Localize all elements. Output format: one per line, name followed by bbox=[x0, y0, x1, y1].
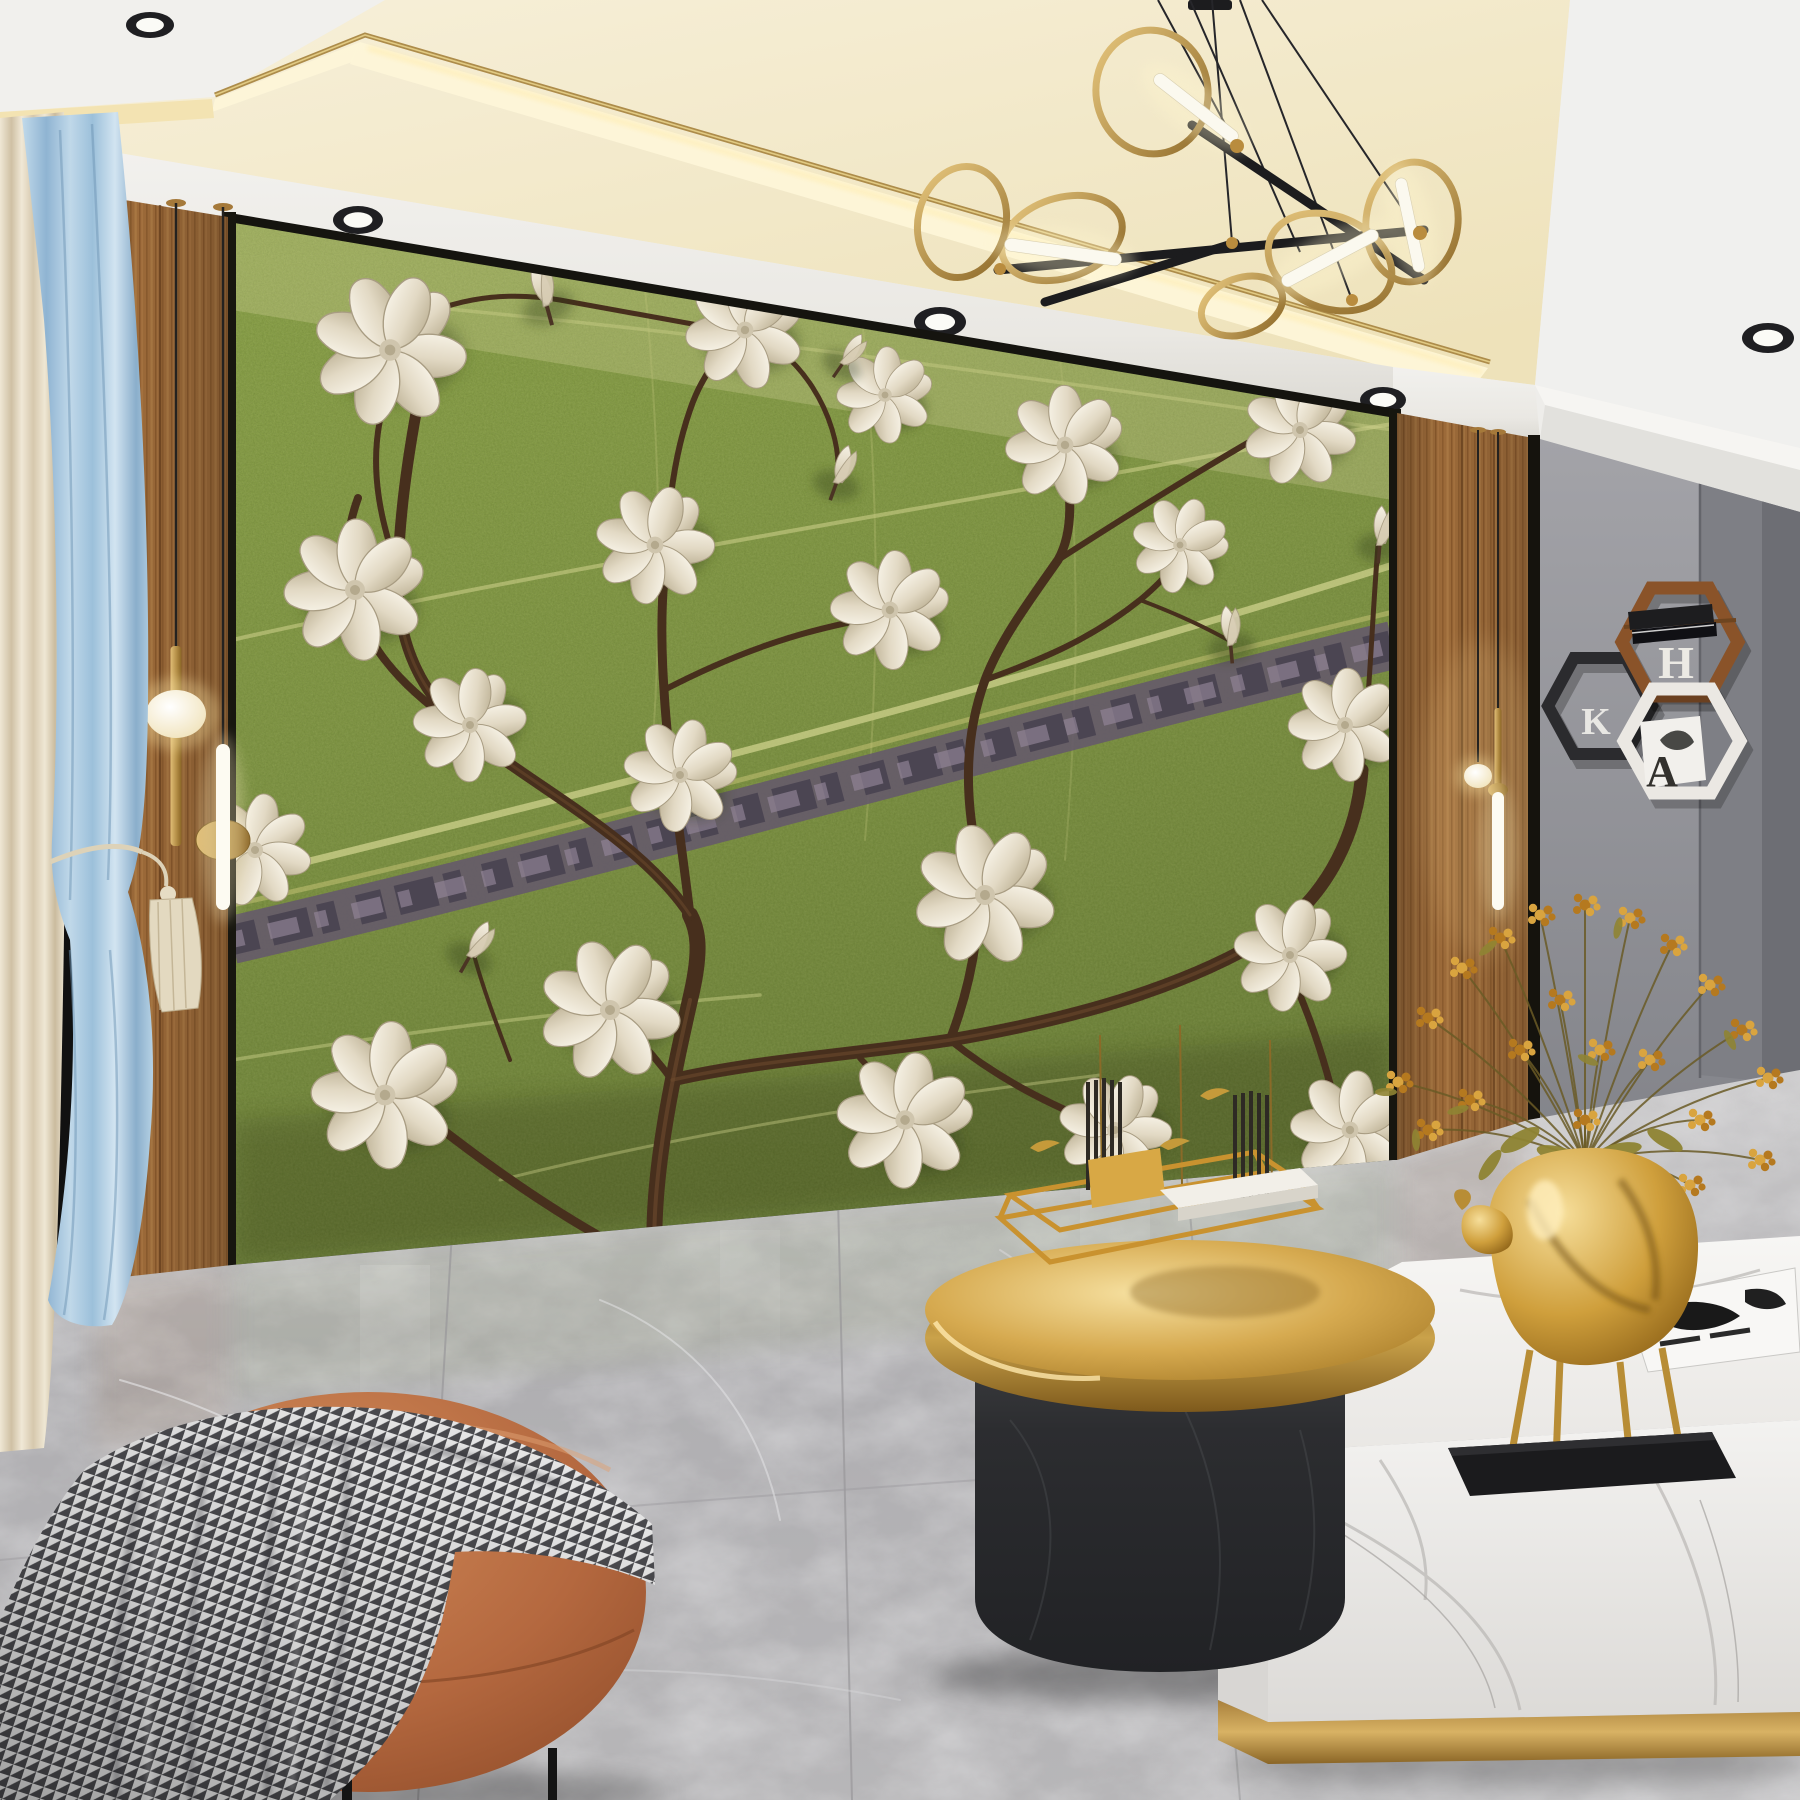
berry bbox=[1586, 1123, 1594, 1131]
spotlight-lens bbox=[1753, 330, 1783, 347]
gold-top-reflection bbox=[1130, 1266, 1320, 1318]
shelf-letter-a: A bbox=[1646, 747, 1678, 796]
berry bbox=[1711, 988, 1719, 996]
pendant-brass-rod bbox=[1495, 708, 1502, 792]
chandelier-joint bbox=[1226, 237, 1238, 249]
berry bbox=[1429, 1021, 1437, 1029]
berry bbox=[1586, 908, 1594, 916]
tassel-skirt bbox=[150, 898, 202, 1012]
spotlight-lens bbox=[344, 212, 373, 227]
berry bbox=[1691, 1188, 1699, 1196]
berry bbox=[1529, 904, 1537, 912]
berry bbox=[1699, 974, 1707, 982]
berry bbox=[1676, 936, 1685, 945]
spotlight-lens bbox=[1370, 393, 1397, 407]
berry bbox=[1524, 1041, 1533, 1050]
floor-light-streak bbox=[720, 1230, 780, 1490]
berry bbox=[1704, 1111, 1713, 1120]
berry bbox=[1718, 983, 1725, 990]
berry bbox=[1731, 1019, 1739, 1027]
berry bbox=[1638, 916, 1645, 923]
berry bbox=[1450, 969, 1458, 977]
berry bbox=[1549, 989, 1557, 997]
berry bbox=[1466, 959, 1475, 968]
berry bbox=[1593, 903, 1600, 910]
berry bbox=[1694, 1176, 1703, 1185]
berry bbox=[1761, 1163, 1769, 1171]
berry bbox=[1417, 1007, 1425, 1015]
berry bbox=[1478, 1098, 1485, 1105]
berry bbox=[1399, 1085, 1407, 1093]
berry bbox=[1528, 1048, 1535, 1055]
arrangement-leaf bbox=[1375, 1088, 1397, 1096]
berry bbox=[1593, 1118, 1600, 1125]
berry bbox=[1708, 1118, 1715, 1125]
berry bbox=[1489, 927, 1497, 935]
hallway-gray-wall: H K A bbox=[1540, 439, 1800, 1120]
berry bbox=[1573, 906, 1581, 914]
deer-vase-body bbox=[1488, 1148, 1698, 1365]
berry bbox=[1689, 1109, 1697, 1117]
berry bbox=[1471, 1103, 1479, 1111]
berry bbox=[1661, 934, 1669, 942]
berry bbox=[1470, 966, 1477, 973]
berry bbox=[1679, 1174, 1687, 1182]
berry bbox=[1509, 1039, 1517, 1047]
chandelier-joint bbox=[994, 263, 1006, 275]
berry bbox=[1402, 1073, 1411, 1082]
berry bbox=[1673, 948, 1681, 956]
berry bbox=[1474, 1091, 1483, 1100]
berry bbox=[1651, 1063, 1659, 1071]
shelf-letter-h: H bbox=[1658, 637, 1694, 688]
berry bbox=[1631, 921, 1639, 929]
berry bbox=[1756, 1079, 1764, 1087]
berry bbox=[1451, 957, 1459, 965]
pendant-globe-light bbox=[146, 690, 206, 738]
pendant-tube-light bbox=[1492, 792, 1504, 910]
chandelier-joint bbox=[1346, 294, 1358, 306]
berry bbox=[1573, 1121, 1581, 1129]
berry bbox=[1757, 1067, 1765, 1075]
berry bbox=[1688, 1121, 1696, 1129]
pendant-tube-light bbox=[216, 744, 230, 910]
berry bbox=[1561, 1003, 1569, 1011]
berry bbox=[1416, 1019, 1424, 1027]
berry bbox=[1638, 1061, 1646, 1069]
berry bbox=[1463, 971, 1471, 979]
berry bbox=[1750, 1028, 1757, 1035]
ceiling-right-plane bbox=[1535, 0, 1800, 448]
berry bbox=[1548, 1001, 1556, 1009]
wood-trim-right bbox=[1528, 435, 1540, 1125]
berry bbox=[1604, 1041, 1613, 1050]
berry bbox=[1768, 1158, 1775, 1165]
berry bbox=[1639, 1049, 1647, 1057]
berry bbox=[1660, 946, 1668, 954]
berry bbox=[1436, 1016, 1443, 1023]
berry bbox=[1387, 1071, 1395, 1079]
berry bbox=[1501, 941, 1509, 949]
chandelier-joint bbox=[1413, 226, 1427, 240]
berry bbox=[1508, 936, 1515, 943]
berry bbox=[1698, 1183, 1705, 1190]
berry bbox=[1429, 1133, 1437, 1141]
berry bbox=[1508, 1051, 1516, 1059]
berry bbox=[1749, 1149, 1757, 1157]
berry bbox=[1528, 916, 1536, 924]
berry bbox=[1748, 1161, 1756, 1169]
spotlight-lens bbox=[925, 314, 955, 331]
scene-canvas: H K A bbox=[0, 0, 1800, 1800]
berry bbox=[1574, 894, 1582, 902]
gray-wall-edge-shade bbox=[1762, 490, 1800, 1090]
berry bbox=[1776, 1076, 1783, 1083]
pendant-wall-glow bbox=[1422, 640, 1542, 960]
berry bbox=[1436, 1128, 1443, 1135]
berry bbox=[1619, 907, 1627, 915]
berry bbox=[1568, 998, 1575, 1005]
berry bbox=[1589, 1039, 1597, 1047]
berry bbox=[1406, 1080, 1413, 1087]
berry bbox=[1746, 1021, 1755, 1030]
pendant-globe-light bbox=[1464, 764, 1492, 788]
berry bbox=[1764, 1151, 1773, 1160]
living-room-render: H K A bbox=[0, 0, 1800, 1800]
berry bbox=[1432, 1121, 1441, 1130]
berry bbox=[1743, 1033, 1751, 1041]
berry bbox=[1769, 1081, 1777, 1089]
chandelier-joint bbox=[1230, 139, 1244, 153]
berry bbox=[1521, 1053, 1529, 1061]
berry bbox=[1772, 1069, 1781, 1078]
berry bbox=[1541, 918, 1549, 926]
berry bbox=[1544, 906, 1553, 915]
berry bbox=[1698, 986, 1706, 994]
berry bbox=[1589, 896, 1598, 905]
berry bbox=[1417, 1119, 1425, 1127]
berry bbox=[1548, 913, 1555, 920]
berry bbox=[1654, 1051, 1663, 1060]
shelf-letter-k: K bbox=[1581, 701, 1611, 743]
berry bbox=[1701, 1123, 1709, 1131]
berry bbox=[1589, 1111, 1598, 1120]
berry bbox=[1574, 1109, 1582, 1117]
berry bbox=[1658, 1058, 1665, 1065]
berry bbox=[1564, 991, 1573, 1000]
berry bbox=[1459, 1089, 1467, 1097]
berry bbox=[1680, 943, 1687, 950]
berry bbox=[1432, 1009, 1441, 1018]
berry bbox=[1504, 929, 1513, 938]
berry bbox=[1608, 1048, 1615, 1055]
vase-highlight bbox=[1527, 1180, 1563, 1240]
berry bbox=[1601, 1053, 1609, 1061]
spotlight-lens bbox=[136, 18, 164, 32]
berry bbox=[1714, 976, 1723, 985]
ottoman-leg bbox=[548, 1748, 557, 1800]
berry bbox=[1634, 909, 1643, 918]
